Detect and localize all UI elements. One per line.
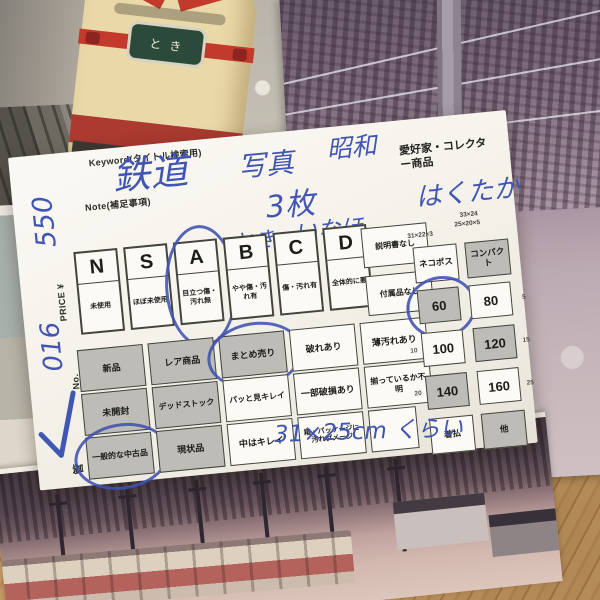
shipping-label: 120 — [483, 335, 506, 352]
handwritten-note-count: 3枚 — [265, 189, 317, 224]
weight-limit-label: 25 — [526, 379, 534, 387]
shipping-label: 140 — [436, 382, 459, 399]
condition-label: 破れあり — [305, 341, 342, 355]
shipping-cell-コンパクト: コンパクト — [464, 238, 511, 278]
size-header-right-1: 33×24 — [459, 210, 478, 219]
condition-grid: 新品レア商品まとめ売り破れあり薄汚れあり未開封デッドストックパッと見キレイ一部破… — [77, 317, 438, 480]
handwritten-note-hakutaka: はくたか — [414, 175, 520, 211]
condition-label: 一部破損あり — [300, 383, 355, 399]
grade-caption: 傷・汚れ有 — [278, 262, 322, 314]
grade-caption: 目立つ傷・汚れ無 — [178, 271, 222, 323]
weight-limit-label: 2 — [406, 305, 410, 312]
house — [392, 493, 489, 550]
shipping-label: ネコポス — [419, 257, 454, 270]
weight-limit-label: 15 — [522, 336, 530, 344]
shipping-cell-120: 12015 — [472, 324, 517, 362]
condition-cell: 未開封 — [81, 388, 151, 436]
condition-cell: 揃っているか不明 — [364, 361, 434, 409]
shipping-label: 100 — [432, 340, 455, 357]
handwritten-keyword-showa: 昭和 — [325, 133, 377, 163]
headlight-left — [85, 31, 100, 45]
condition-label: レア商品 — [164, 354, 201, 368]
grade-caption: やや傷・汚れ有 — [228, 267, 272, 319]
train-headmark: とき — [125, 20, 207, 69]
grade-letter: A — [175, 241, 218, 276]
grade-caption: ほぼ未使用 — [128, 276, 172, 328]
grade-column-N: N未使用 — [73, 248, 125, 335]
shipping-cell-80: 805 — [468, 281, 513, 319]
condition-cell: 一部破損あり — [293, 367, 363, 415]
grade-caption: 未使用 — [78, 281, 122, 333]
handwritten-keyword-tetsudo: 鉄道 — [110, 151, 189, 196]
condition-label: 新品 — [102, 362, 121, 374]
shipping-cell-140: 14020 — [425, 372, 470, 410]
grade-letter: B — [225, 236, 268, 271]
photo-scene: とき Keyword(タイトル検索用) No — [0, 0, 600, 600]
shipping-cell-60: 602 — [417, 286, 462, 324]
collector-item-label: 愛好家・コレクター商品 — [399, 136, 495, 173]
shed — [489, 508, 563, 557]
condition-cell: デッドストック — [152, 381, 222, 429]
condition-label: 現状品 — [177, 442, 205, 455]
condition-cell: 破れあり — [289, 324, 359, 372]
headlight-right — [232, 48, 247, 62]
grade-column-C: C傷・汚れ有 — [272, 229, 324, 316]
grading-form: Keyword(タイトル検索用) Note(補足事項) 愛好家・コレクター商品 … — [8, 110, 538, 490]
grade-letter: S — [125, 245, 168, 280]
grade-column-A: A目立つ傷・汚れ無 — [173, 238, 225, 325]
grade-column-B: Bやや傷・汚れ有 — [223, 234, 275, 321]
condition-cell: まとめ売り — [218, 330, 288, 378]
accessories-missing-label: 付属品なし — [379, 286, 420, 299]
weight-limit-label: 5 — [522, 294, 526, 301]
shipping-cell-100: 10010 — [421, 329, 466, 367]
condition-label: まとめ売り — [230, 347, 276, 362]
shipping-label: 80 — [483, 292, 499, 308]
shipping-label: 60 — [431, 297, 447, 313]
condition-cell: パッと見キレイ — [222, 374, 292, 422]
manual-missing-label: 説明書なし — [375, 239, 416, 252]
condition-cell: 一般的な中古品 — [85, 432, 155, 480]
weight-limit-label: 20 — [414, 390, 422, 398]
condition-label: 一般的な中古品 — [92, 448, 149, 463]
condition-label: 薄汚れあり — [371, 333, 417, 348]
express-train-cars — [0, 530, 355, 600]
condition-cell: レア商品 — [147, 337, 217, 385]
shipping-cell-160: 16025 — [477, 367, 522, 405]
condition-label: デッドストック — [158, 398, 215, 413]
condition-cell: 薄汚れあり — [359, 317, 429, 365]
shipping-label: 他 — [500, 424, 509, 435]
shipping-cell-他: 他 — [481, 410, 528, 450]
condition-cell: 現状品 — [156, 425, 226, 473]
shipping-label: 160 — [488, 377, 511, 394]
weight-limit-label: 10 — [410, 347, 418, 355]
shipping-label: コンパクト — [467, 247, 509, 270]
size-header-right-2: 25×20×5 — [454, 219, 480, 228]
grade-column-S: Sほぼ未使用 — [123, 243, 175, 330]
condition-label: 未開封 — [102, 405, 130, 418]
condition-cell: 新品 — [77, 344, 147, 392]
condition-label: パッと見キレイ — [229, 391, 286, 406]
handwritten-price: 550 — [27, 172, 66, 270]
handwritten-keyword-shashin: 写真 — [237, 149, 295, 182]
windshield — [114, 2, 227, 26]
grade-row: N未使用Sほぼ未使用A目立つ傷・汚れ無Bやや傷・汚れ有C傷・汚れ有D全体的に悪 — [73, 223, 379, 333]
grade-letter: C — [275, 231, 318, 266]
grade-letter: N — [76, 250, 119, 285]
shipping-cell-ネコポス: ネコポス — [412, 243, 459, 283]
size-header-left: 31×22×3 — [407, 231, 433, 240]
kan-label: 管 — [69, 456, 87, 481]
